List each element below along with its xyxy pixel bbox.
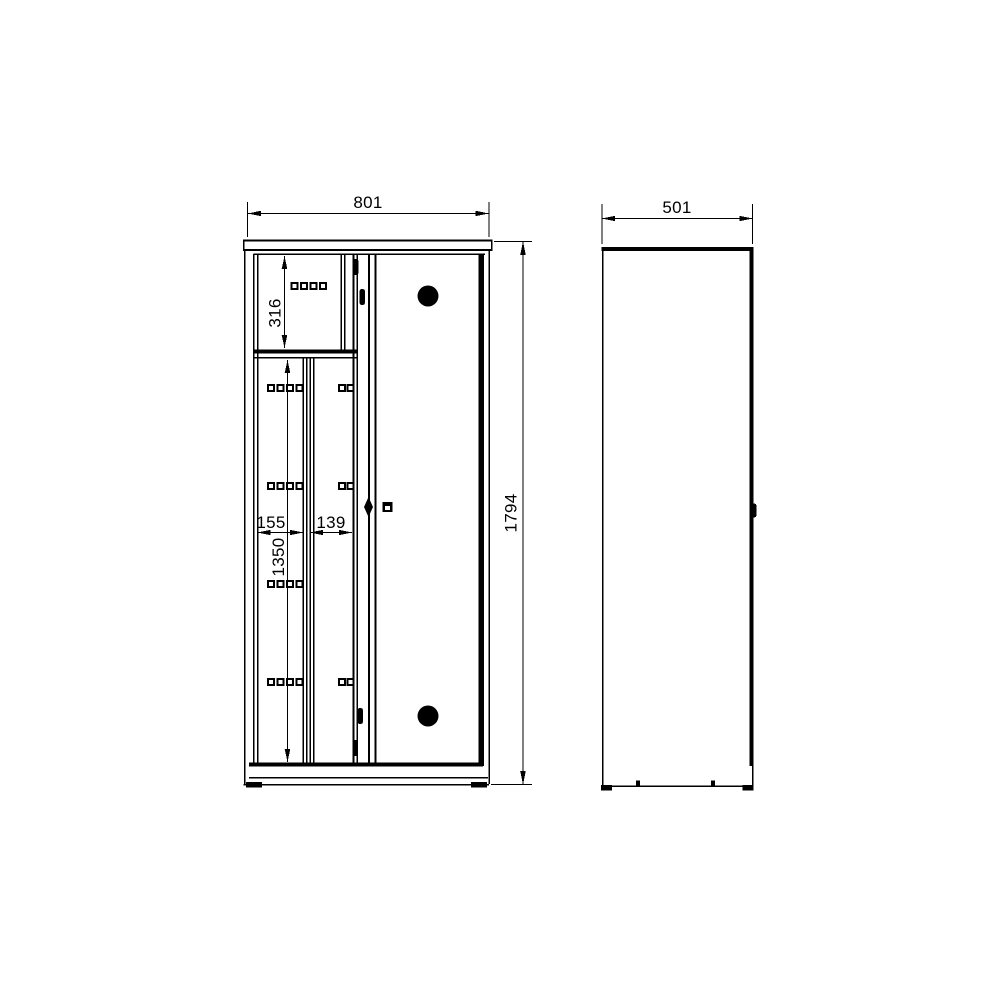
base-screw-icon (711, 781, 715, 786)
front-base (244, 765, 490, 788)
dim-label-front-width: 801 (353, 193, 382, 212)
dim-label-middle-bay: 139 (316, 513, 345, 532)
arrowhead-icon (282, 256, 288, 269)
arrowhead-icon (476, 211, 490, 216)
dim-label-side-depth: 501 (662, 198, 691, 217)
arrowhead-icon (282, 335, 288, 348)
dimension-lower-section: 1350 (269, 360, 290, 762)
dimension-middle-bay: 139 (310, 513, 352, 535)
base-screw-icon (636, 781, 640, 786)
vent-hole-bottom-icon (418, 706, 439, 727)
front-view: 801 1794 316 1350 (243, 193, 532, 788)
door-lock (364, 497, 393, 517)
arrowhead-icon (248, 211, 262, 216)
side-view: 501 (601, 198, 757, 791)
vent-hole-top-icon (418, 286, 439, 307)
vent-holes (418, 286, 439, 727)
side-right-foot (743, 785, 754, 791)
dim-label-top-compartment: 316 (266, 298, 285, 327)
bay-divider (303, 358, 314, 763)
hinge-icon (353, 740, 359, 756)
door-frame (354, 254, 482, 766)
arrowhead-icon (740, 216, 753, 221)
side-outline (602, 249, 754, 786)
arrowhead-icon (290, 530, 303, 535)
dimension-side-depth: 501 (602, 198, 753, 244)
side-left-foot (601, 785, 612, 791)
hinge-icon (353, 259, 359, 275)
cabinet-technical-drawing: 801 1794 316 1350 (0, 0, 1000, 1000)
front-right-foot (471, 782, 487, 788)
hinge-icon (358, 708, 364, 724)
drawing-canvas: 801 1794 316 1350 (0, 0, 1000, 1000)
arrowhead-icon (285, 360, 291, 373)
arrowhead-icon (520, 242, 526, 256)
front-left-foot (246, 782, 262, 788)
arrowhead-icon (520, 771, 526, 785)
handle-icon (752, 504, 757, 518)
dimension-left-bay: 155 (256, 513, 303, 535)
hinge-icon (360, 289, 366, 305)
arrowhead-icon (285, 749, 291, 762)
dimension-front-width: 801 (248, 193, 490, 237)
front-top-cap (243, 240, 492, 252)
dim-label-left-bay: 155 (256, 513, 285, 532)
dim-label-lower-section: 1350 (269, 537, 288, 576)
dimension-top-compartment: 316 (266, 256, 288, 348)
dimension-front-height: 1794 (491, 242, 532, 785)
lock-cylinder-icon (364, 497, 373, 517)
arrowhead-icon (602, 216, 615, 221)
dim-label-front-height: 1794 (502, 493, 521, 532)
